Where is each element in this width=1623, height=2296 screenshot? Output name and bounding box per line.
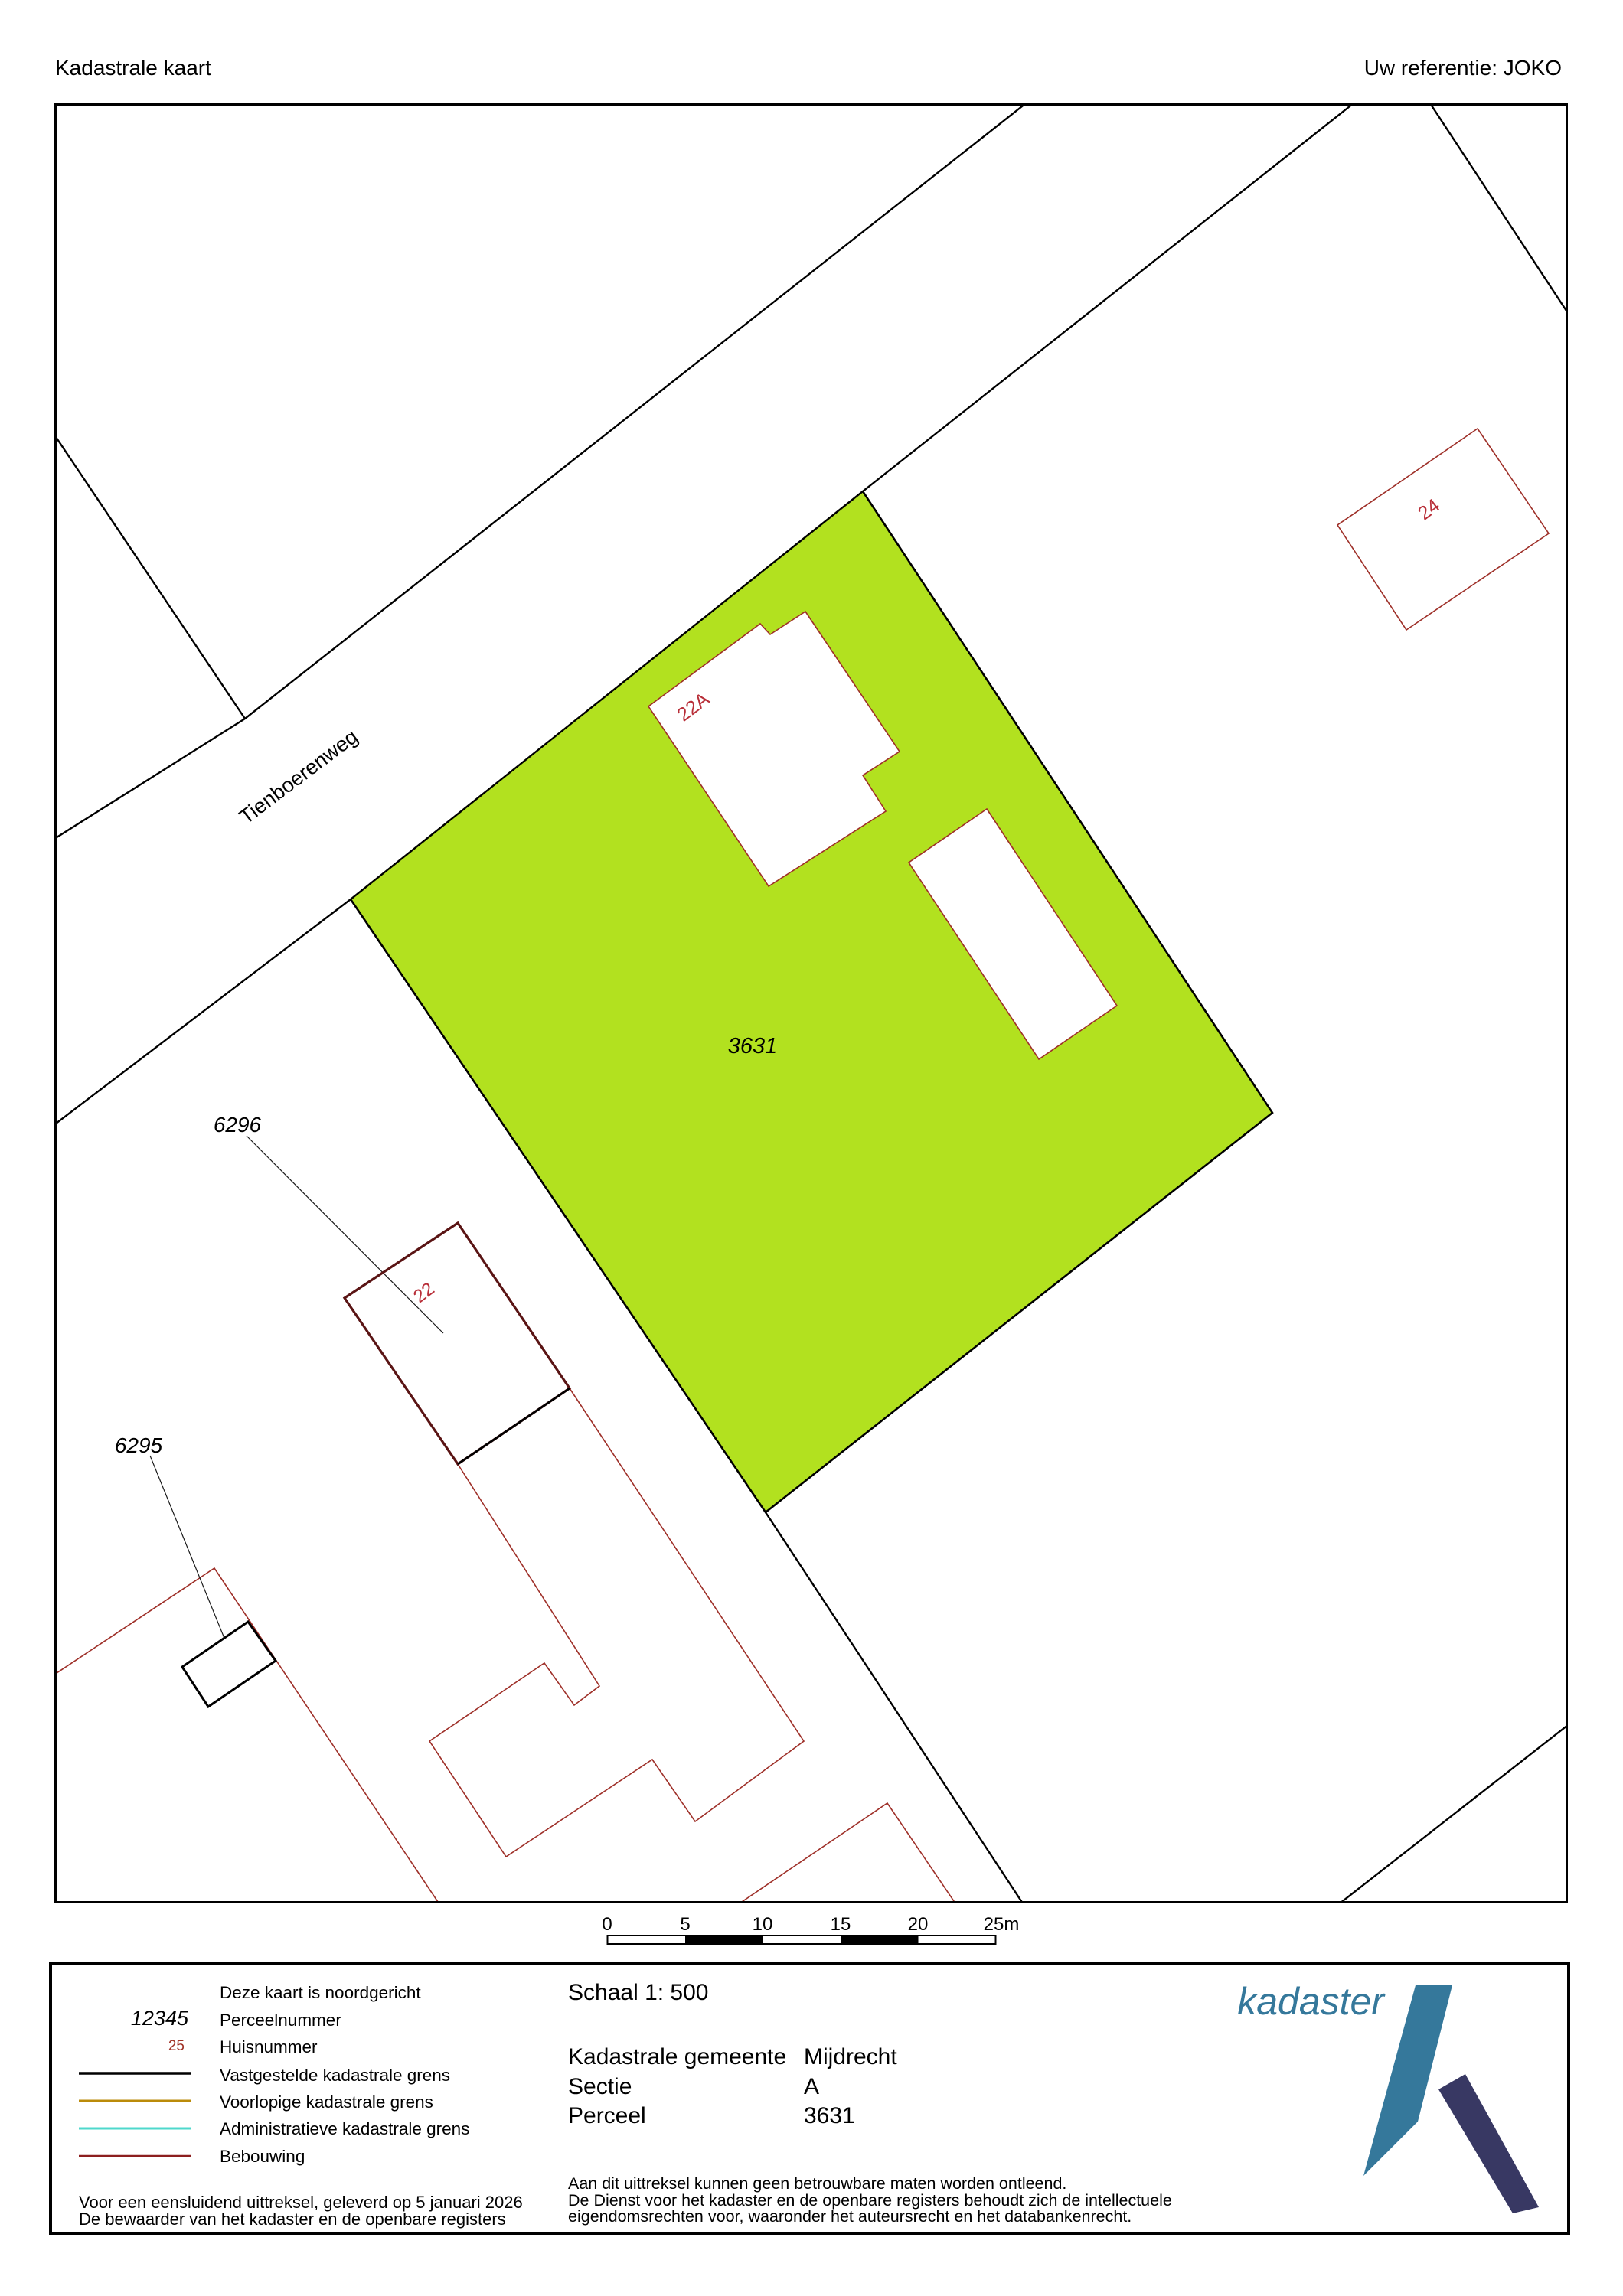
svg-text:A: A [804,2074,819,2099]
svg-text:Mijdrecht: Mijdrecht [804,2044,897,2069]
svg-text:3631: 3631 [728,1034,778,1058]
svg-text:Sectie: Sectie [568,2074,632,2099]
svg-text:Kadastrale gemeente: Kadastrale gemeente [568,2044,786,2069]
svg-text:Administratieve kadastrale gre: Administratieve kadastrale grens [220,2119,469,2138]
svg-text:Perceelnummer: Perceelnummer [220,2011,341,2030]
svg-text:25: 25 [168,2038,185,2054]
svg-text:5: 5 [680,1914,690,1935]
svg-text:Aan dit uittreksel kunnen geen: Aan dit uittreksel kunnen geen betrouwba… [568,2174,1066,2193]
svg-text:Perceel: Perceel [568,2103,646,2128]
svg-text:Voorlopige kadastrale grens: Voorlopige kadastrale grens [220,2092,433,2112]
svg-text:Vastgestelde kadastrale grens: Vastgestelde kadastrale grens [220,2066,450,2085]
svg-text:Deze kaart is noordgericht: Deze kaart is noordgericht [220,1983,421,2002]
svg-text:20: 20 [908,1914,929,1935]
svg-text:10: 10 [753,1914,773,1935]
svg-text:De bewaarder van het kadaster: De bewaarder van het kadaster en de open… [79,2210,506,2229]
svg-text:Kadastrale kaart: Kadastrale kaart [55,56,211,80]
svg-text:15: 15 [831,1914,851,1935]
svg-text:eigendomsrechten voor, waarond: eigendomsrechten voor, waaronder het aut… [568,2207,1132,2226]
svg-text:6296: 6296 [214,1113,262,1137]
svg-text:Schaal 1: 500: Schaal 1: 500 [568,1980,708,2005]
svg-text:3631: 3631 [804,2103,855,2128]
svg-text:6295: 6295 [115,1433,163,1457]
svg-text:0: 0 [602,1914,612,1935]
svg-text:kadaster: kadaster [1237,1980,1386,2023]
svg-text:12345: 12345 [131,2007,189,2030]
svg-text:Uw referentie: JOKO: Uw referentie: JOKO [1364,56,1562,80]
svg-text:Bebouwing: Bebouwing [220,2147,305,2166]
svg-text:25m: 25m [984,1914,1020,1935]
svg-text:Huisnummer: Huisnummer [220,2037,318,2056]
